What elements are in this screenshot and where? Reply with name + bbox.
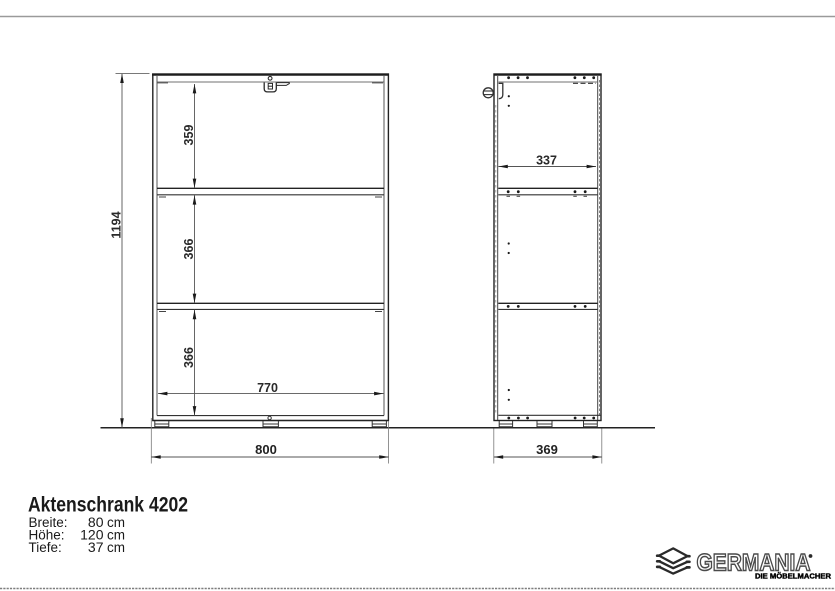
svg-text:359: 359 [182, 125, 196, 146]
svg-text:Tiefe:: Tiefe: [29, 540, 62, 555]
svg-text:800: 800 [255, 442, 277, 457]
svg-text:337: 337 [536, 153, 557, 167]
svg-text:1194: 1194 [109, 211, 123, 238]
svg-text:Aktenschrank 4202: Aktenschrank 4202 [28, 494, 188, 517]
svg-text:DIE MÖBELMACHER: DIE MÖBELMACHER [755, 571, 832, 580]
svg-text:369: 369 [536, 442, 558, 457]
svg-text:cm: cm [107, 540, 125, 555]
svg-text:366: 366 [182, 239, 196, 260]
svg-text:366: 366 [182, 347, 196, 368]
svg-text:37: 37 [88, 539, 104, 555]
svg-text:770: 770 [257, 381, 278, 395]
